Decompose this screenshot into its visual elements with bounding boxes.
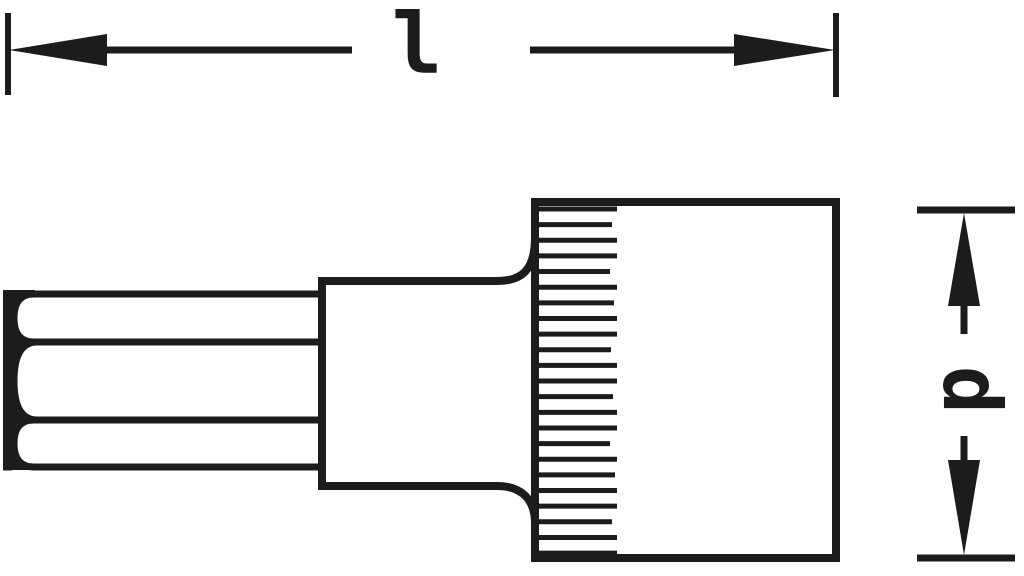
hex-facet-middle — [14, 342, 322, 420]
length-dimension: l — [8, 0, 836, 97]
hex-bit-tip — [3, 290, 322, 471]
hex-facet-top — [14, 294, 322, 342]
diameter-label: d — [925, 366, 1018, 414]
length-label: l — [392, 0, 443, 93]
collar — [322, 237, 535, 523]
arrow-up-icon — [948, 213, 980, 306]
tool-outline — [3, 202, 836, 558]
diameter-dimension: d — [917, 210, 1018, 558]
arrow-right-icon — [734, 34, 835, 66]
arrow-left-icon — [9, 34, 107, 66]
arrow-down-icon — [948, 460, 980, 555]
drawing-canvas: l d — [0, 0, 1024, 576]
hex-bit-socket-drawing: l d — [0, 0, 1024, 576]
hex-facet-bottom — [14, 420, 322, 467]
